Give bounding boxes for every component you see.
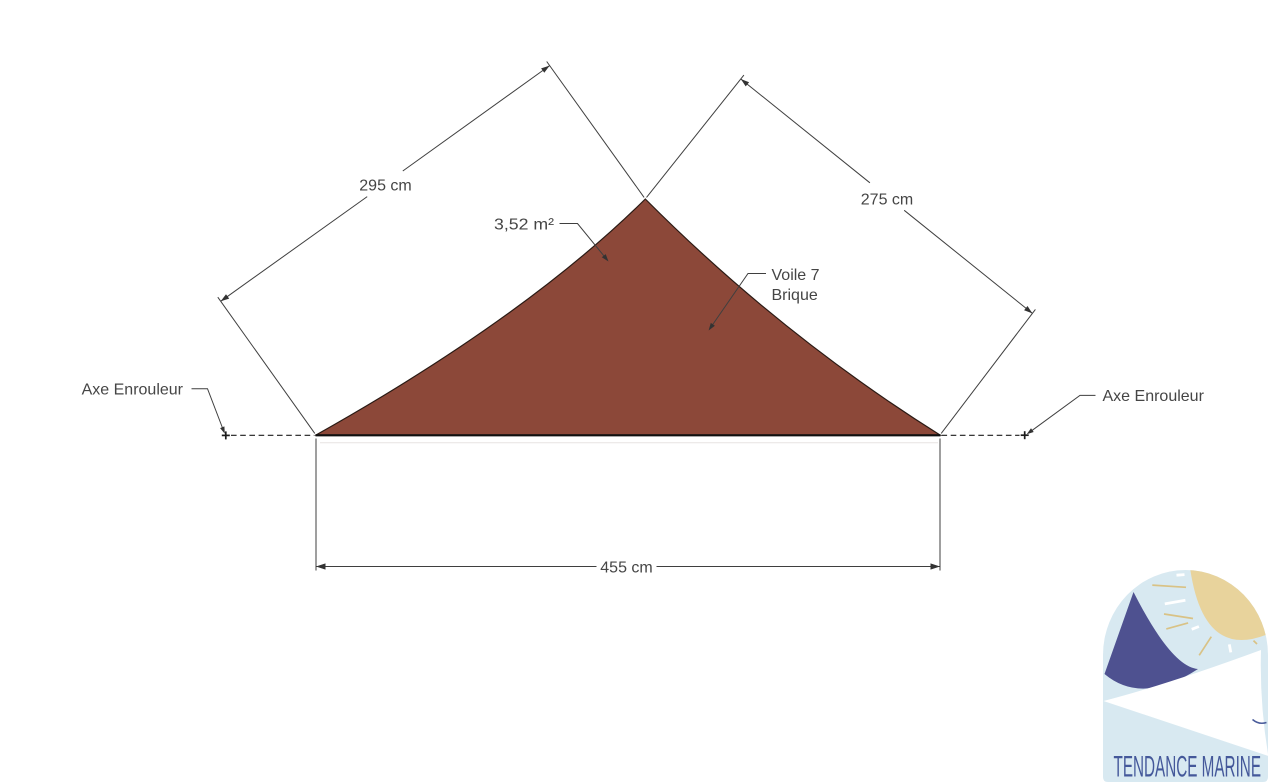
svg-text:Axe Enrouleur: Axe Enrouleur xyxy=(82,382,184,399)
svg-text:Voile 7: Voile 7 xyxy=(772,267,820,284)
svg-text:275 cm: 275 cm xyxy=(861,192,913,209)
svg-text:Brique: Brique xyxy=(772,287,818,304)
svg-text:3,52 m²: 3,52 m² xyxy=(494,217,555,234)
svg-text:295 cm: 295 cm xyxy=(359,177,411,194)
svg-text:455 cm: 455 cm xyxy=(600,560,652,577)
svg-text:Axe Enrouleur: Axe Enrouleur xyxy=(1103,388,1205,405)
svg-text:TENDANCE MARINE: TENDANCE MARINE xyxy=(1114,751,1262,782)
